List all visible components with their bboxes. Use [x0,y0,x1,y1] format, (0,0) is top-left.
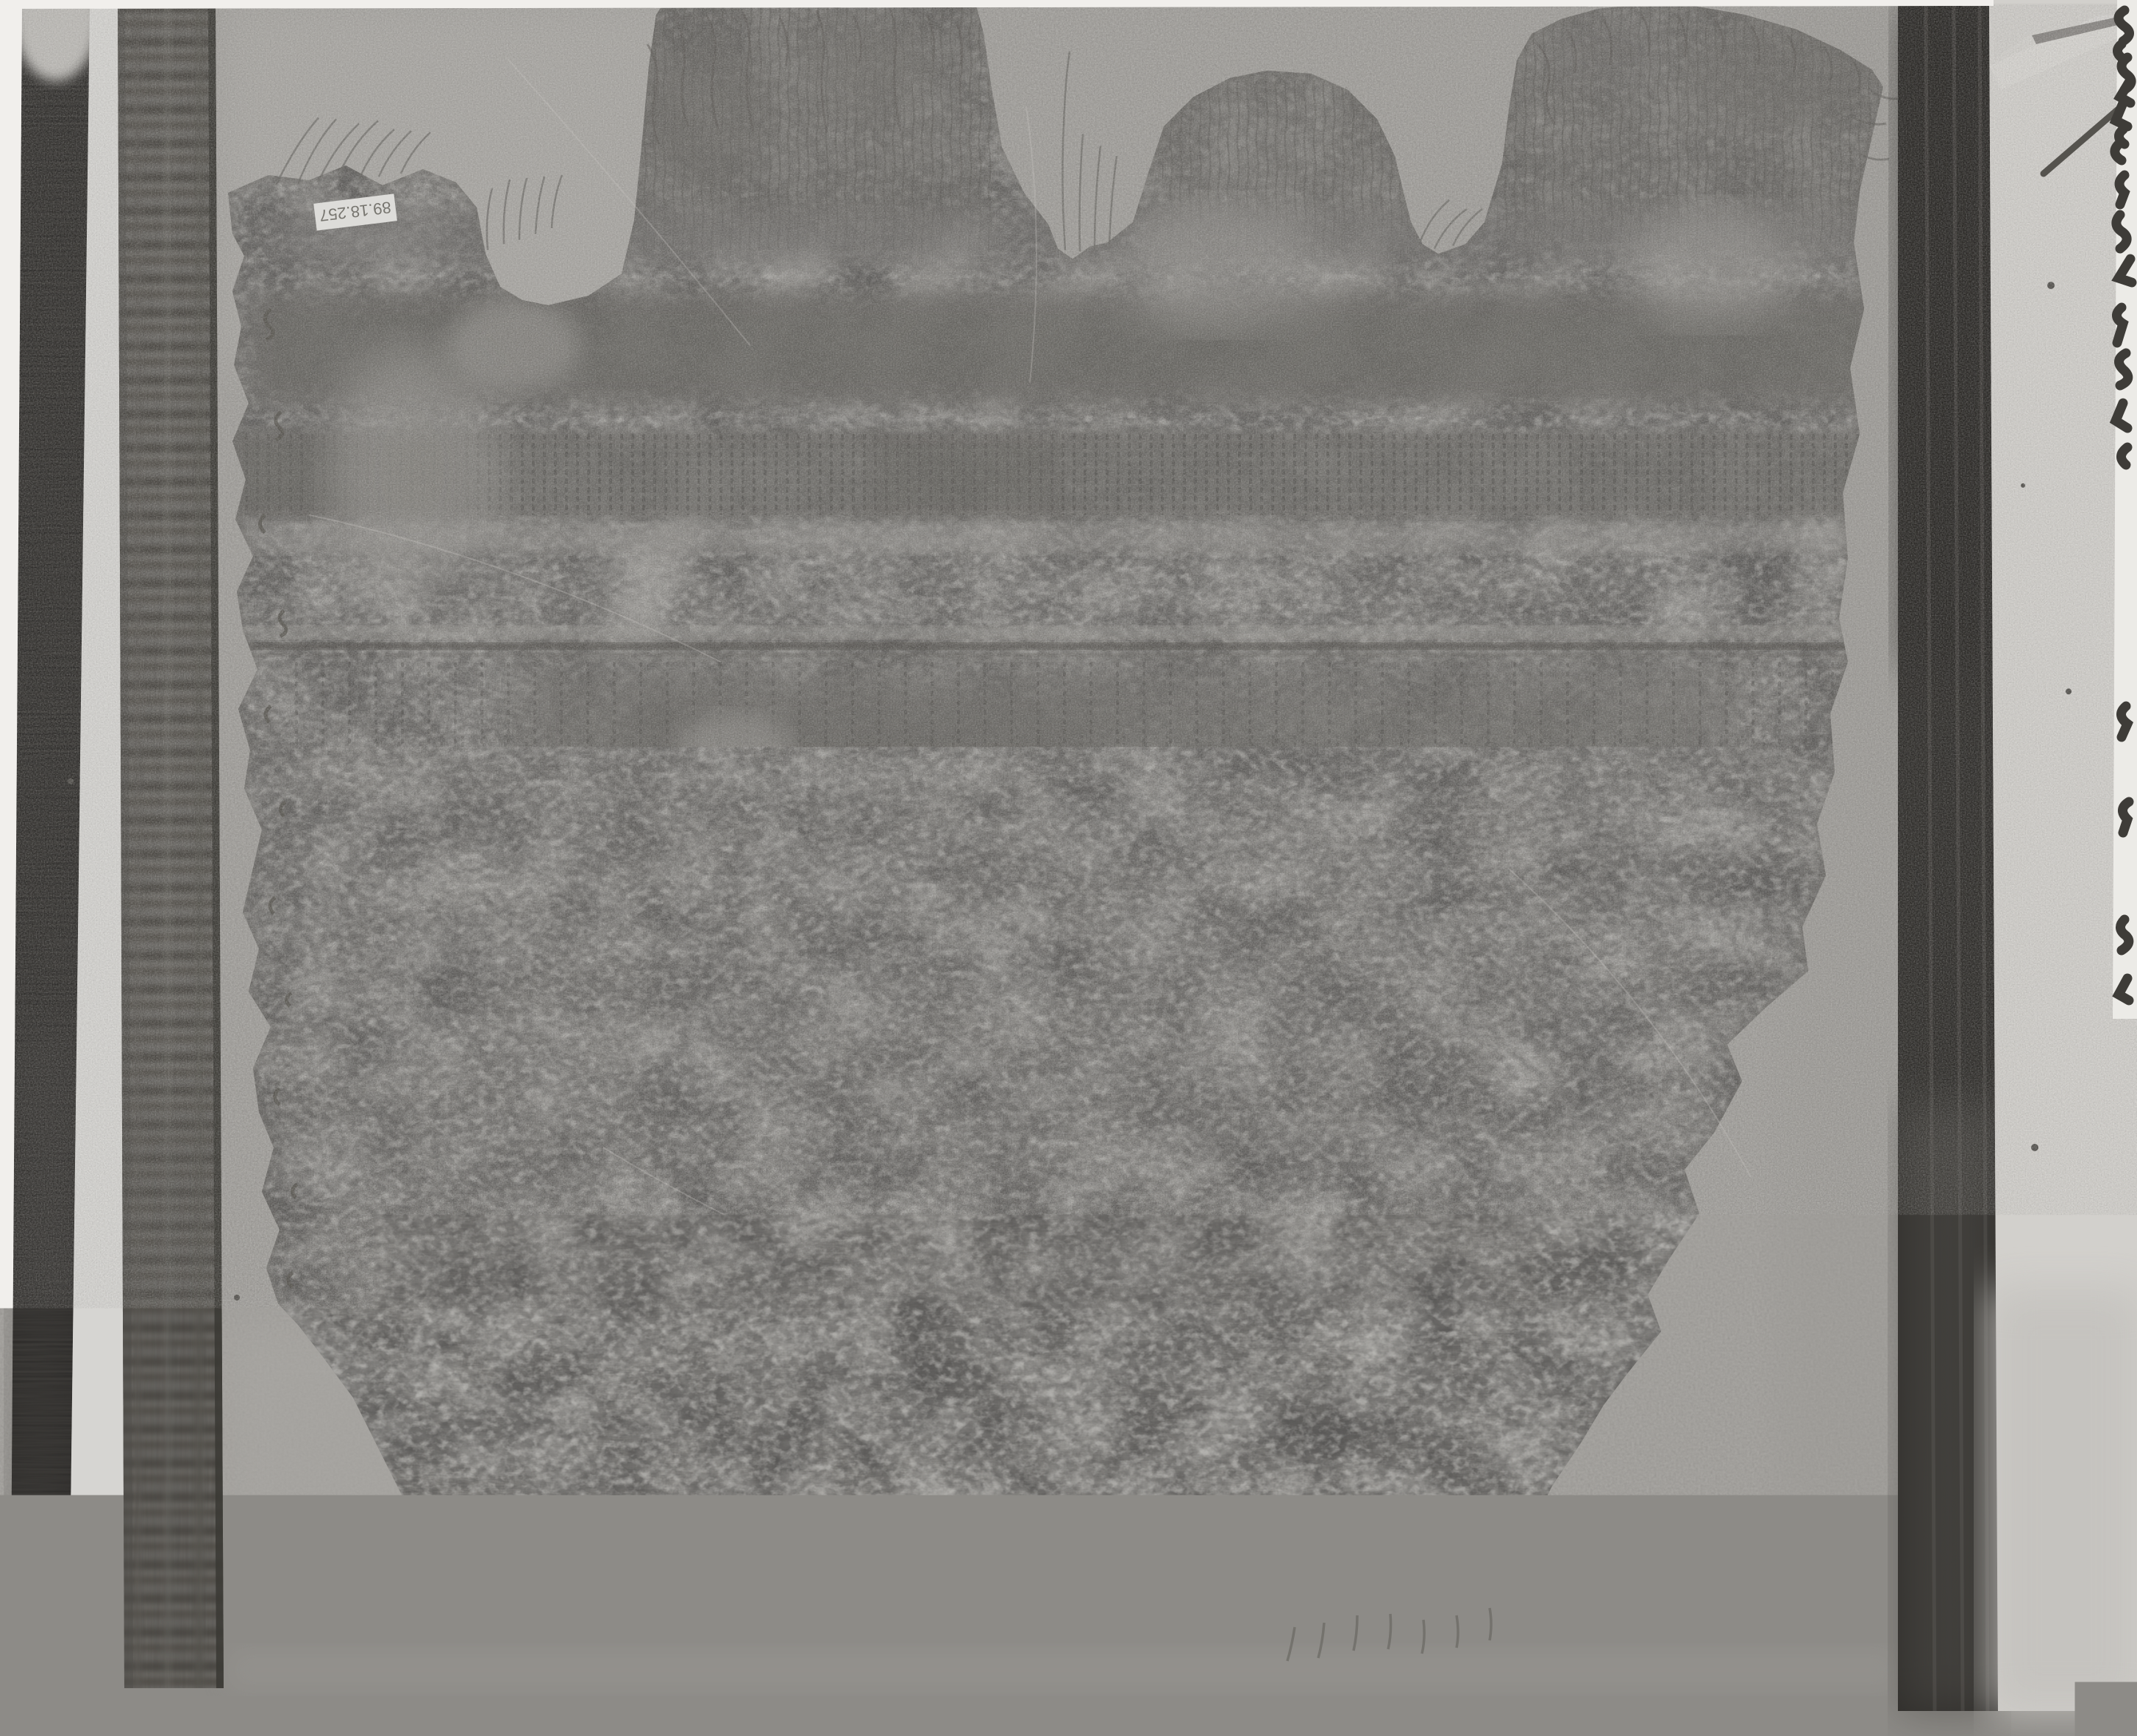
svg-text:80258/89.18.257: 80258/89.18.257 [525,1700,758,1736]
